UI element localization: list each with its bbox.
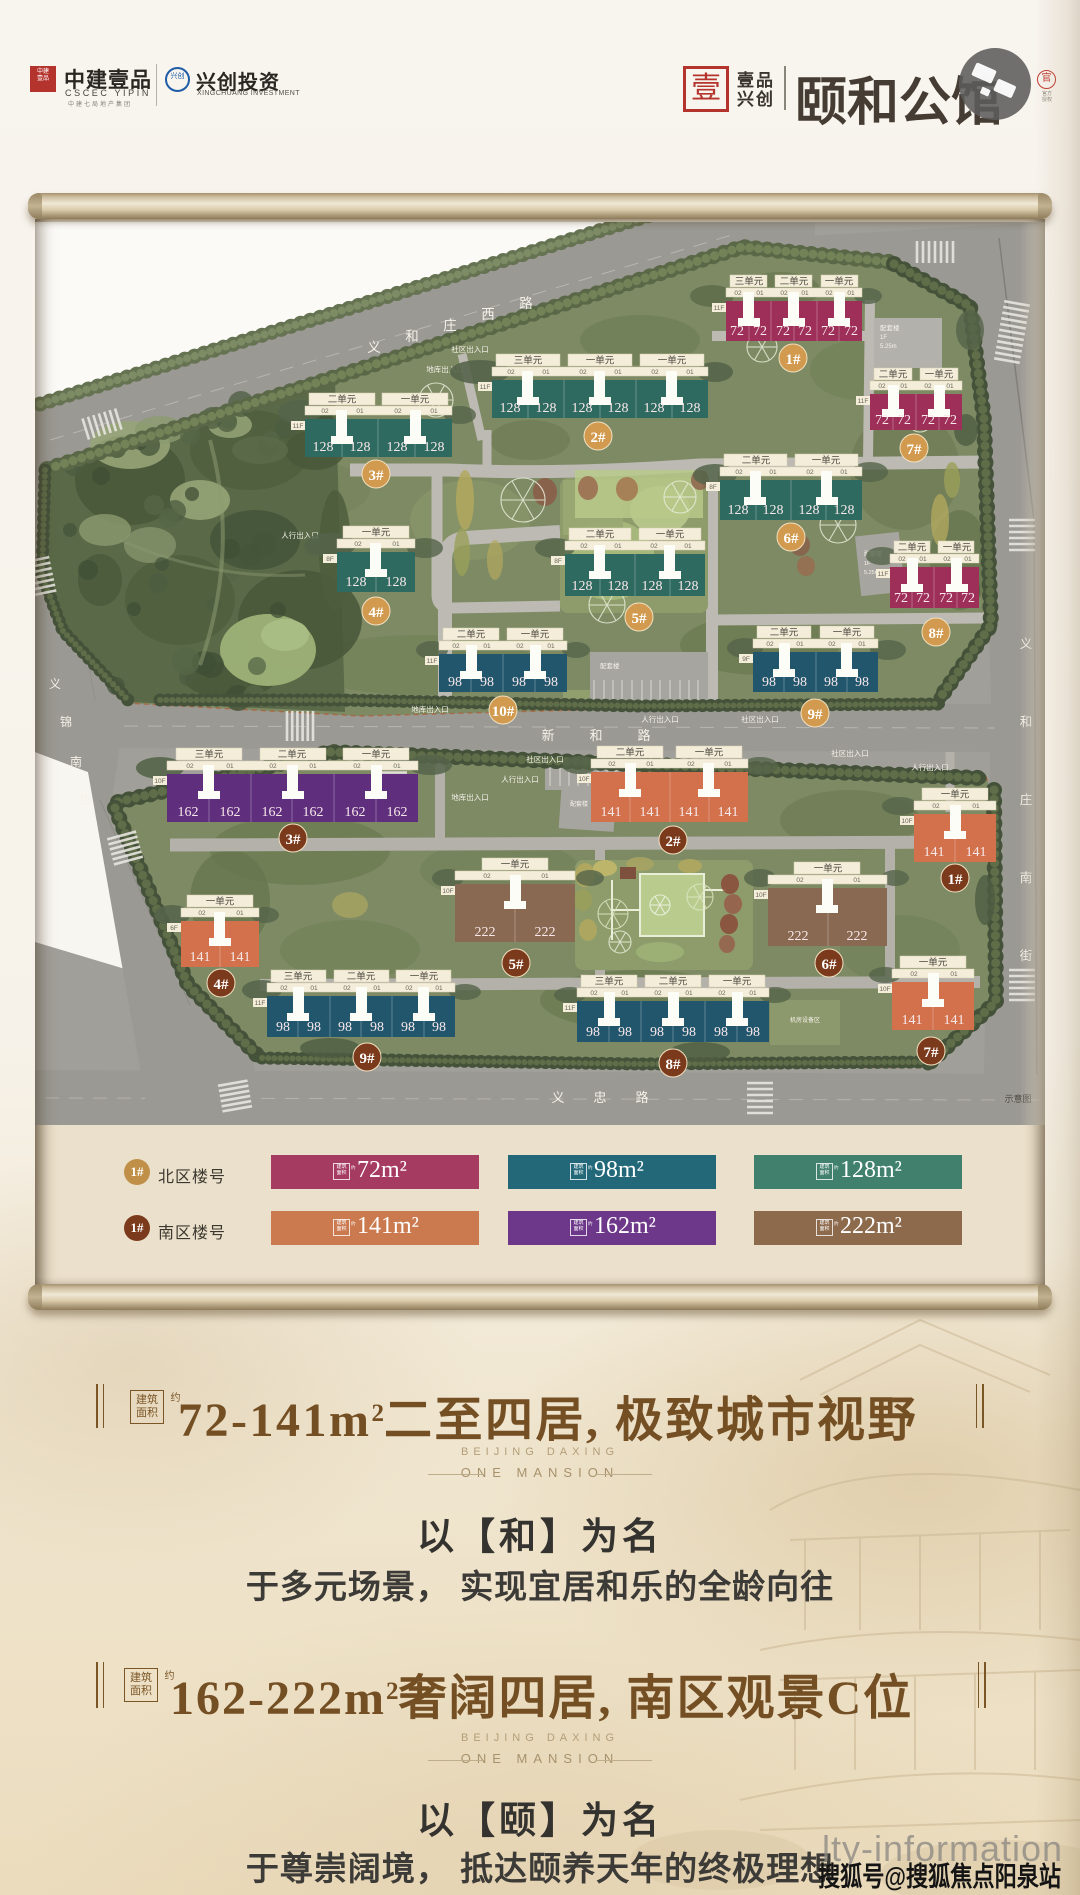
svg-text:72: 72 bbox=[961, 591, 975, 606]
svg-text:02: 02 bbox=[718, 990, 726, 997]
svg-text:02: 02 bbox=[898, 556, 906, 563]
svg-text:三单元: 三单元 bbox=[514, 355, 543, 367]
svg-text:11F: 11F bbox=[714, 305, 725, 312]
svg-text:二单元: 二单元 bbox=[586, 529, 615, 541]
svg-text:二单元: 二单元 bbox=[780, 276, 809, 288]
svg-text:98: 98 bbox=[618, 1025, 632, 1040]
svg-text:社区出入口: 社区出入口 bbox=[741, 714, 779, 724]
svg-text:5.25m: 5.25m bbox=[880, 344, 897, 350]
svg-text:一单元: 一单元 bbox=[656, 529, 685, 541]
svg-text:01: 01 bbox=[685, 990, 693, 997]
svg-text:8F: 8F bbox=[554, 558, 562, 565]
svg-text:二单元: 二单元 bbox=[879, 369, 908, 381]
svg-text:一单元: 一单元 bbox=[919, 957, 948, 969]
svg-text:1#: 1# bbox=[948, 872, 964, 888]
svg-text:72: 72 bbox=[921, 413, 935, 428]
svg-text:128: 128 bbox=[346, 575, 367, 590]
svg-text:02: 02 bbox=[590, 990, 598, 997]
svg-text:162: 162 bbox=[262, 805, 283, 820]
svg-text:10F: 10F bbox=[879, 986, 890, 993]
svg-text:01: 01 bbox=[840, 469, 848, 476]
svg-text:128: 128 bbox=[572, 579, 593, 594]
svg-text:01: 01 bbox=[236, 910, 244, 917]
svg-text:社区出入口: 社区出入口 bbox=[451, 344, 489, 354]
svg-text:141: 141 bbox=[902, 1013, 923, 1028]
svg-text:141: 141 bbox=[944, 1013, 965, 1028]
svg-text:02: 02 bbox=[608, 761, 616, 768]
svg-text:配套楼: 配套楼 bbox=[570, 800, 588, 808]
svg-text:10#: 10# bbox=[492, 704, 515, 720]
svg-text:人行出入口: 人行出入口 bbox=[641, 714, 679, 724]
svg-text:72: 72 bbox=[821, 324, 835, 339]
svg-text:162: 162 bbox=[220, 805, 241, 820]
svg-text:01: 01 bbox=[853, 877, 861, 884]
svg-text:地库出入口: 地库出入口 bbox=[411, 704, 449, 714]
svg-text:二单元: 二单元 bbox=[742, 455, 771, 467]
svg-text:02: 02 bbox=[780, 290, 788, 297]
svg-text:72: 72 bbox=[844, 324, 858, 339]
svg-text:10F: 10F bbox=[154, 778, 165, 785]
svg-text:二单元: 二单元 bbox=[457, 629, 486, 641]
svg-text:6F: 6F bbox=[170, 925, 178, 932]
svg-text:南: 南 bbox=[70, 754, 82, 769]
svg-text:一单元: 一单元 bbox=[586, 355, 615, 367]
svg-text:98: 98 bbox=[682, 1025, 696, 1040]
svg-text:01: 01 bbox=[847, 290, 855, 297]
svg-text:128: 128 bbox=[644, 401, 665, 416]
svg-text:98: 98 bbox=[432, 1020, 446, 1035]
svg-text:01: 01 bbox=[769, 469, 777, 476]
svg-text:01: 01 bbox=[724, 761, 732, 768]
svg-text:128: 128 bbox=[386, 575, 407, 590]
svg-text:8F: 8F bbox=[326, 556, 334, 563]
svg-text:11F: 11F bbox=[565, 1005, 576, 1012]
svg-text:路: 路 bbox=[519, 296, 533, 311]
svg-text:8#: 8# bbox=[929, 626, 945, 642]
svg-text:98: 98 bbox=[448, 675, 462, 690]
svg-text:01: 01 bbox=[858, 641, 866, 648]
svg-text:72: 72 bbox=[894, 591, 908, 606]
svg-text:02: 02 bbox=[321, 408, 329, 415]
svg-text:141: 141 bbox=[190, 950, 211, 965]
svg-text:72: 72 bbox=[939, 591, 953, 606]
svg-text:141: 141 bbox=[640, 805, 661, 820]
svg-text:02: 02 bbox=[924, 383, 932, 390]
svg-text:02: 02 bbox=[579, 369, 587, 376]
svg-text:98: 98 bbox=[855, 675, 869, 690]
svg-text:三单元: 三单元 bbox=[284, 971, 313, 983]
svg-text:128: 128 bbox=[500, 401, 521, 416]
svg-text:5#: 5# bbox=[632, 611, 648, 627]
svg-text:02: 02 bbox=[796, 877, 804, 884]
svg-text:128: 128 bbox=[608, 401, 629, 416]
svg-text:01: 01 bbox=[483, 643, 491, 650]
svg-text:地库出入口: 地库出入口 bbox=[451, 792, 489, 802]
svg-text:72: 72 bbox=[875, 413, 889, 428]
svg-text:72: 72 bbox=[943, 413, 957, 428]
svg-text:128: 128 bbox=[572, 401, 593, 416]
svg-text:01: 01 bbox=[950, 971, 958, 978]
svg-text:1#: 1# bbox=[786, 352, 802, 368]
svg-text:222: 222 bbox=[788, 929, 809, 944]
svg-text:人行出入口: 人行出入口 bbox=[501, 774, 539, 784]
svg-text:01: 01 bbox=[946, 383, 954, 390]
svg-text:社区出入口: 社区出入口 bbox=[831, 748, 869, 758]
svg-text:72: 72 bbox=[916, 591, 930, 606]
svg-text:128: 128 bbox=[608, 579, 629, 594]
svg-text:一单元: 一单元 bbox=[925, 369, 954, 381]
svg-text:128: 128 bbox=[313, 440, 334, 455]
svg-text:02: 02 bbox=[354, 541, 362, 548]
svg-text:新: 新 bbox=[541, 728, 554, 743]
svg-text:02: 02 bbox=[932, 803, 940, 810]
svg-text:01: 01 bbox=[900, 383, 908, 390]
svg-text:街: 街 bbox=[80, 793, 92, 807]
svg-text:162: 162 bbox=[178, 805, 199, 820]
svg-text:一单元: 一单元 bbox=[658, 355, 687, 367]
svg-text:01: 01 bbox=[796, 641, 804, 648]
svg-text:141: 141 bbox=[924, 845, 945, 860]
svg-text:98: 98 bbox=[370, 1020, 384, 1035]
svg-text:一单元: 一单元 bbox=[825, 276, 854, 288]
svg-text:02: 02 bbox=[766, 641, 774, 648]
svg-text:128: 128 bbox=[387, 440, 408, 455]
svg-text:一单元: 一单元 bbox=[943, 542, 972, 554]
svg-text:02: 02 bbox=[516, 643, 524, 650]
svg-text:5#: 5# bbox=[509, 957, 525, 973]
svg-text:二单元: 二单元 bbox=[898, 542, 927, 554]
svg-text:机房设备区: 机房设备区 bbox=[790, 1016, 820, 1024]
svg-text:配套楼: 配套楼 bbox=[880, 323, 900, 332]
svg-text:162: 162 bbox=[303, 805, 324, 820]
svg-text:02: 02 bbox=[507, 369, 515, 376]
svg-text:一单元: 一单元 bbox=[941, 789, 970, 801]
svg-text:01: 01 bbox=[542, 369, 550, 376]
svg-text:10F: 10F bbox=[755, 892, 766, 899]
svg-text:141: 141 bbox=[718, 805, 739, 820]
svg-text:一单元: 一单元 bbox=[833, 627, 862, 639]
svg-text:01: 01 bbox=[686, 369, 694, 376]
svg-text:11F: 11F bbox=[255, 1000, 266, 1007]
svg-text:98: 98 bbox=[512, 675, 526, 690]
svg-text:98: 98 bbox=[480, 675, 494, 690]
svg-text:128: 128 bbox=[350, 440, 371, 455]
svg-text:01: 01 bbox=[972, 803, 980, 810]
svg-text:11F: 11F bbox=[427, 658, 438, 665]
svg-text:路: 路 bbox=[635, 1090, 648, 1105]
svg-text:二单元: 二单元 bbox=[616, 747, 645, 759]
svg-text:02: 02 bbox=[910, 971, 918, 978]
svg-text:义: 义 bbox=[367, 340, 381, 355]
svg-text:98: 98 bbox=[762, 675, 776, 690]
svg-text:二单元: 二单元 bbox=[347, 971, 376, 983]
svg-text:98: 98 bbox=[544, 675, 558, 690]
svg-text:和: 和 bbox=[589, 728, 602, 743]
svg-text:128: 128 bbox=[728, 503, 749, 518]
svg-text:8#: 8# bbox=[666, 1057, 682, 1073]
svg-text:162: 162 bbox=[345, 805, 366, 820]
svg-text:一单元: 一单元 bbox=[401, 394, 430, 406]
svg-text:二单元: 二单元 bbox=[328, 394, 357, 406]
svg-text:02: 02 bbox=[735, 469, 743, 476]
svg-text:72: 72 bbox=[753, 324, 767, 339]
svg-text:一单元: 一单元 bbox=[362, 749, 391, 761]
svg-text:02: 02 bbox=[806, 469, 814, 476]
svg-text:01: 01 bbox=[435, 985, 443, 992]
svg-text:01: 01 bbox=[749, 990, 757, 997]
svg-text:02: 02 bbox=[580, 543, 588, 550]
svg-text:98: 98 bbox=[401, 1020, 415, 1035]
svg-text:02: 02 bbox=[943, 556, 951, 563]
svg-text:2#: 2# bbox=[666, 834, 682, 850]
svg-text:10F: 10F bbox=[901, 818, 912, 825]
svg-text:3#: 3# bbox=[369, 468, 385, 484]
svg-text:西: 西 bbox=[481, 307, 495, 322]
svg-text:162: 162 bbox=[387, 805, 408, 820]
svg-text:02: 02 bbox=[269, 763, 277, 770]
svg-text:6#: 6# bbox=[822, 957, 838, 973]
svg-text:98: 98 bbox=[650, 1025, 664, 1040]
svg-text:01: 01 bbox=[356, 408, 364, 415]
svg-text:02: 02 bbox=[343, 985, 351, 992]
svg-text:72: 72 bbox=[798, 324, 812, 339]
svg-text:02: 02 bbox=[828, 641, 836, 648]
svg-text:128: 128 bbox=[536, 401, 557, 416]
svg-text:三单元: 三单元 bbox=[735, 276, 764, 288]
svg-text:一单元: 一单元 bbox=[812, 455, 841, 467]
svg-text:02: 02 bbox=[825, 290, 833, 297]
svg-text:一单元: 一单元 bbox=[501, 859, 530, 871]
svg-text:01: 01 bbox=[226, 763, 234, 770]
svg-text:222: 222 bbox=[475, 925, 496, 940]
svg-text:一单元: 一单元 bbox=[695, 747, 724, 759]
svg-text:01: 01 bbox=[964, 556, 972, 563]
svg-text:222: 222 bbox=[535, 925, 556, 940]
svg-text:128: 128 bbox=[799, 503, 820, 518]
svg-text:01: 01 bbox=[430, 408, 438, 415]
svg-text:01: 01 bbox=[310, 985, 318, 992]
svg-text:01: 01 bbox=[373, 985, 381, 992]
svg-text:二单元: 二单元 bbox=[659, 976, 688, 988]
svg-text:9#: 9# bbox=[808, 707, 824, 723]
svg-text:128: 128 bbox=[678, 579, 699, 594]
svg-text:01: 01 bbox=[621, 990, 629, 997]
svg-text:72: 72 bbox=[897, 413, 911, 428]
svg-text:人行出入口: 人行出入口 bbox=[911, 762, 949, 772]
svg-text:路: 路 bbox=[637, 728, 650, 743]
svg-text:三单元: 三单元 bbox=[595, 976, 624, 988]
svg-text:庄: 庄 bbox=[443, 317, 457, 333]
svg-text:141: 141 bbox=[601, 805, 622, 820]
svg-text:4#: 4# bbox=[369, 605, 385, 621]
svg-text:11F: 11F bbox=[293, 423, 304, 430]
svg-text:98: 98 bbox=[586, 1025, 600, 1040]
svg-text:02: 02 bbox=[280, 985, 288, 992]
svg-text:一单元: 一单元 bbox=[206, 896, 235, 908]
svg-text:02: 02 bbox=[452, 643, 460, 650]
svg-text:98: 98 bbox=[338, 1020, 352, 1035]
svg-text:98: 98 bbox=[746, 1025, 760, 1040]
svg-text:02: 02 bbox=[186, 763, 194, 770]
svg-text:10F: 10F bbox=[442, 888, 453, 895]
svg-text:2#: 2# bbox=[591, 430, 607, 446]
svg-text:锦: 锦 bbox=[60, 715, 72, 729]
svg-text:02: 02 bbox=[878, 383, 886, 390]
svg-text:01: 01 bbox=[614, 369, 622, 376]
svg-text:02: 02 bbox=[654, 990, 662, 997]
svg-text:01: 01 bbox=[309, 763, 317, 770]
svg-text:8F: 8F bbox=[709, 484, 717, 491]
svg-text:01: 01 bbox=[614, 543, 622, 550]
svg-text:141: 141 bbox=[230, 950, 251, 965]
svg-text:和: 和 bbox=[405, 329, 419, 344]
svg-text:02: 02 bbox=[405, 985, 413, 992]
svg-text:01: 01 bbox=[646, 761, 654, 768]
svg-text:01: 01 bbox=[392, 541, 400, 548]
svg-text:02: 02 bbox=[353, 763, 361, 770]
svg-text:义: 义 bbox=[551, 1090, 564, 1105]
svg-text:02: 02 bbox=[394, 408, 402, 415]
svg-text:98: 98 bbox=[824, 675, 838, 690]
svg-text:1F: 1F bbox=[880, 335, 887, 341]
svg-text:02: 02 bbox=[198, 910, 206, 917]
svg-text:11F: 11F bbox=[858, 398, 869, 405]
svg-text:6#: 6# bbox=[784, 531, 800, 547]
svg-text:9#: 9# bbox=[360, 1051, 376, 1067]
svg-text:01: 01 bbox=[756, 290, 764, 297]
svg-text:128: 128 bbox=[642, 579, 663, 594]
svg-text:3#: 3# bbox=[286, 832, 302, 848]
svg-text:一单元: 一单元 bbox=[723, 976, 752, 988]
svg-text:7#: 7# bbox=[907, 442, 923, 458]
svg-text:一单元: 一单元 bbox=[410, 971, 439, 983]
svg-text:02: 02 bbox=[650, 543, 658, 550]
svg-text:4#: 4# bbox=[214, 977, 230, 993]
svg-text:01: 01 bbox=[684, 543, 692, 550]
svg-text:98: 98 bbox=[793, 675, 807, 690]
svg-text:02: 02 bbox=[483, 873, 491, 880]
svg-text:02: 02 bbox=[651, 369, 659, 376]
svg-text:义: 义 bbox=[49, 677, 61, 691]
svg-text:一单元: 一单元 bbox=[814, 863, 843, 875]
svg-text:三单元: 三单元 bbox=[195, 749, 224, 761]
svg-text:02: 02 bbox=[734, 290, 742, 297]
svg-text:141: 141 bbox=[679, 805, 700, 820]
svg-text:72: 72 bbox=[730, 324, 744, 339]
svg-text:222: 222 bbox=[847, 929, 868, 944]
svg-text:社区出入口: 社区出入口 bbox=[526, 754, 564, 764]
svg-text:01: 01 bbox=[801, 290, 809, 297]
svg-text:9F: 9F bbox=[742, 656, 750, 663]
svg-text:忠: 忠 bbox=[593, 1090, 606, 1105]
svg-text:98: 98 bbox=[307, 1020, 321, 1035]
svg-text:10F: 10F bbox=[578, 776, 589, 783]
svg-text:7#: 7# bbox=[924, 1045, 940, 1061]
svg-text:11F: 11F bbox=[480, 384, 491, 391]
svg-text:一单元: 一单元 bbox=[362, 527, 391, 539]
svg-text:二单元: 二单元 bbox=[278, 749, 307, 761]
svg-text:01: 01 bbox=[541, 873, 549, 880]
svg-text:72: 72 bbox=[776, 324, 790, 339]
svg-text:128: 128 bbox=[424, 440, 445, 455]
svg-text:141: 141 bbox=[966, 845, 987, 860]
svg-text:128: 128 bbox=[680, 401, 701, 416]
svg-text:11F: 11F bbox=[878, 571, 889, 578]
svg-text:98: 98 bbox=[714, 1025, 728, 1040]
svg-text:128: 128 bbox=[763, 503, 784, 518]
svg-text:128: 128 bbox=[834, 503, 855, 518]
svg-text:01: 01 bbox=[393, 763, 401, 770]
svg-text:配套楼: 配套楼 bbox=[600, 661, 620, 670]
svg-text:01: 01 bbox=[547, 643, 555, 650]
svg-text:02: 02 bbox=[687, 761, 695, 768]
svg-text:01: 01 bbox=[919, 556, 927, 563]
svg-text:98: 98 bbox=[276, 1020, 290, 1035]
svg-text:一单元: 一单元 bbox=[521, 629, 550, 641]
svg-text:二单元: 二单元 bbox=[770, 627, 799, 639]
